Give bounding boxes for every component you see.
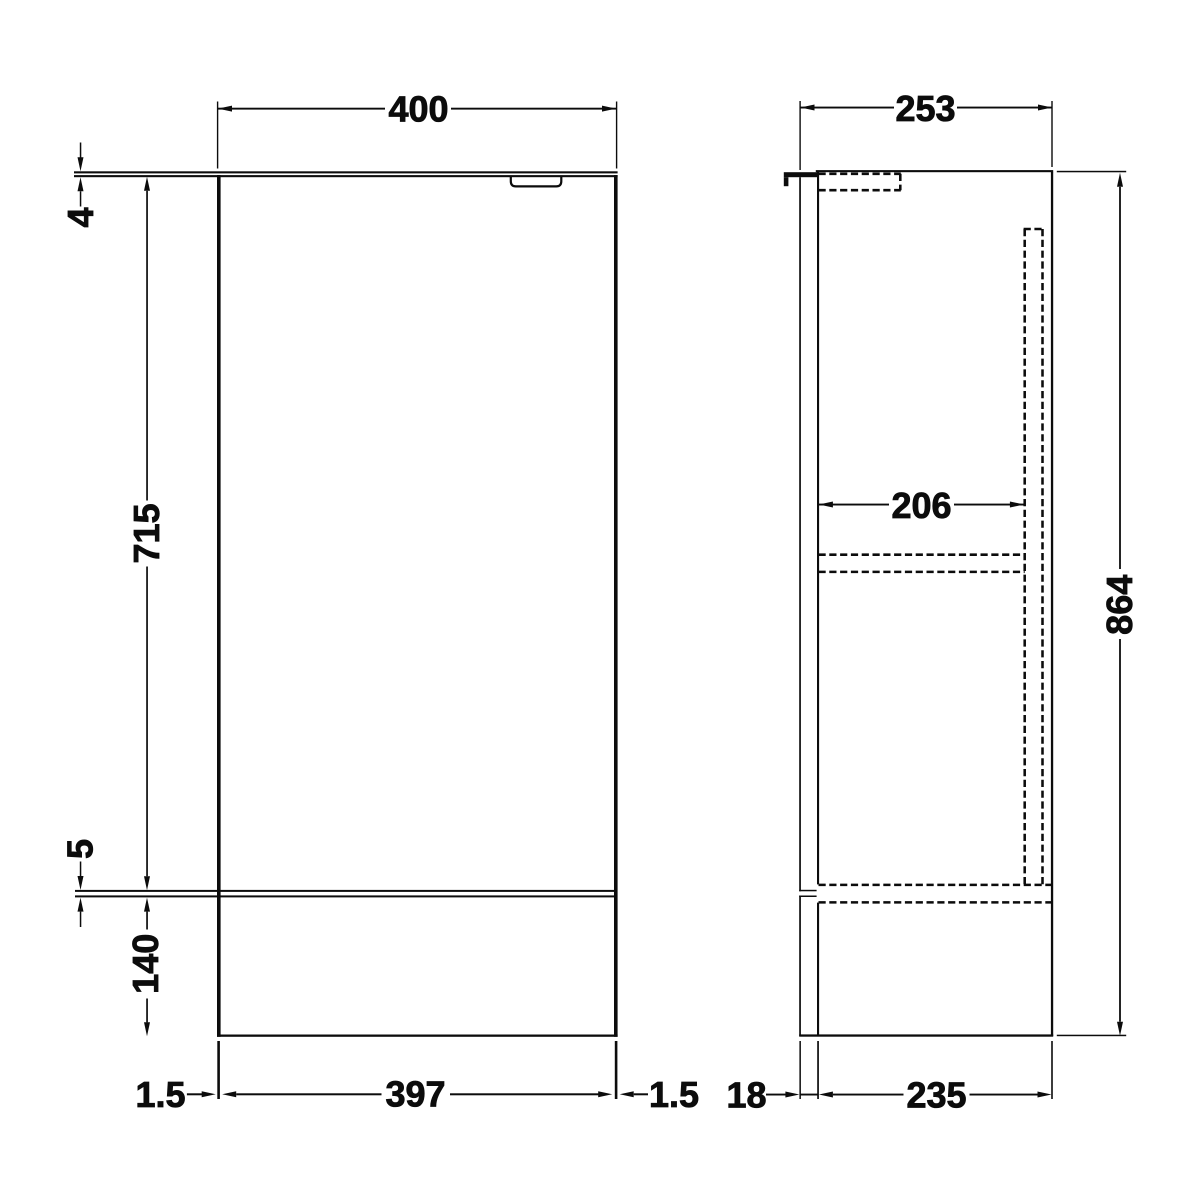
svg-text:206: 206 <box>891 485 951 526</box>
svg-text:4: 4 <box>60 207 101 227</box>
svg-text:140: 140 <box>125 934 166 994</box>
svg-text:864: 864 <box>1099 575 1140 635</box>
svg-text:400: 400 <box>388 89 448 130</box>
svg-text:715: 715 <box>126 503 167 563</box>
svg-text:1.5: 1.5 <box>135 1074 185 1115</box>
svg-text:18: 18 <box>726 1074 766 1115</box>
svg-text:5: 5 <box>59 839 100 859</box>
svg-text:235: 235 <box>906 1074 966 1115</box>
svg-text:397: 397 <box>385 1074 445 1115</box>
svg-text:1.5: 1.5 <box>649 1074 699 1115</box>
svg-text:253: 253 <box>895 88 955 129</box>
